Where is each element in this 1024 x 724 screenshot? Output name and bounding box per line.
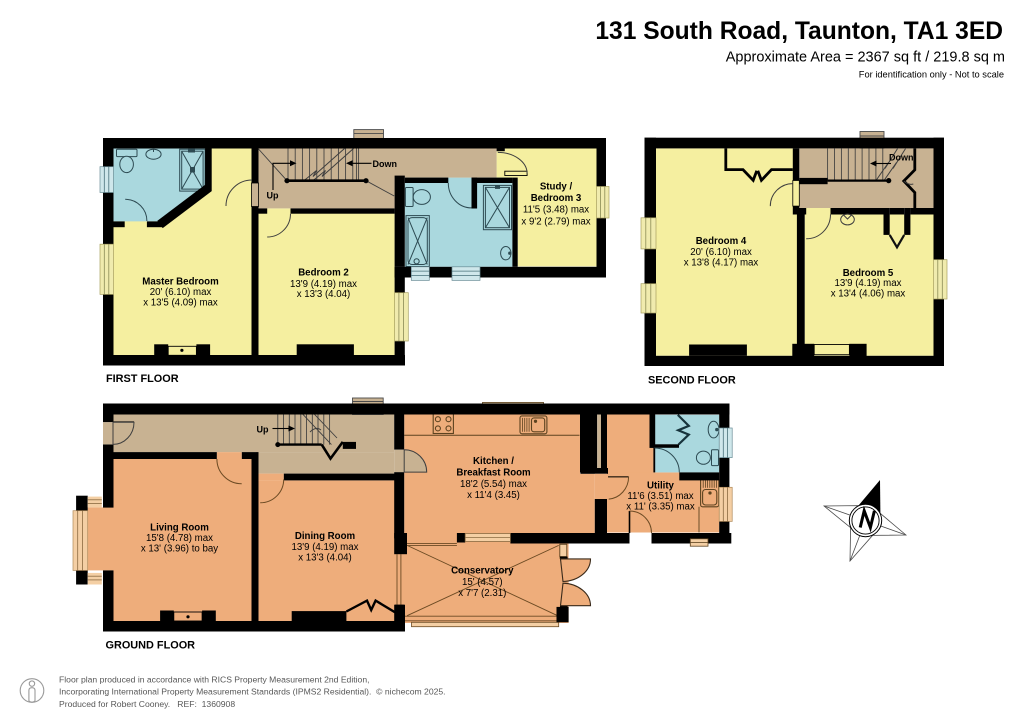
svg-text:Kitchen /: Kitchen / [473, 456, 514, 467]
svg-text:Dining Room: Dining Room [295, 531, 356, 542]
svg-text:Breakfast Room: Breakfast Room [456, 468, 531, 479]
svg-text:131 South Road, Taunton, TA1 3: 131 South Road, Taunton, TA1 3ED [595, 18, 1003, 45]
svg-text:18'2 (5.54) max: 18'2 (5.54) max [460, 479, 527, 490]
svg-text:FIRST FLOOR: FIRST FLOOR [106, 373, 179, 385]
svg-text:Down: Down [373, 159, 398, 169]
svg-text:11'5 (3.48) max: 11'5 (3.48) max [523, 205, 589, 216]
svg-text:Bedroom 3: Bedroom 3 [531, 193, 582, 204]
svg-text:Up: Up [257, 425, 269, 435]
svg-text:15'8 (4.78) max: 15'8 (4.78) max [146, 533, 213, 544]
svg-text:11'6 (3.51) max: 11'6 (3.51) max [627, 491, 693, 502]
svg-text:Up: Up [267, 191, 279, 201]
svg-text:Master Bedroom: Master Bedroom [142, 277, 219, 288]
svg-text:x 13'3 (4.04): x 13'3 (4.04) [297, 289, 351, 300]
svg-text:20' (6.10) max: 20' (6.10) max [150, 287, 212, 298]
svg-text:x 11'4 (3.45): x 11'4 (3.45) [467, 490, 520, 501]
svg-text:Bedroom 2: Bedroom 2 [298, 268, 349, 279]
svg-text:Living Room: Living Room [150, 522, 209, 533]
svg-text:20' (6.10) max: 20' (6.10) max [690, 247, 752, 258]
svg-text:Conservatory: Conservatory [451, 566, 514, 577]
svg-text:x 13'5 (4.09) max: x 13'5 (4.09) max [143, 298, 218, 309]
svg-text:SECOND FLOOR: SECOND FLOOR [648, 375, 736, 387]
svg-text:Approximate Area = 2367 sq ft: Approximate Area = 2367 sq ft / 219.8 sq… [726, 50, 1005, 66]
svg-text:x 11' (3.35) max: x 11' (3.35) max [626, 501, 695, 512]
svg-text:x 13'4 (4.06) max: x 13'4 (4.06) max [831, 289, 906, 300]
svg-text:15' (4.57): 15' (4.57) [462, 577, 503, 588]
svg-text:Study /: Study / [540, 182, 573, 193]
svg-text:GROUND FLOOR: GROUND FLOOR [106, 640, 196, 652]
svg-text:Produced for Robert Cooney.: Produced for Robert Cooney. REF: 1360908 [59, 699, 235, 709]
svg-text:x 13'3 (4.04): x 13'3 (4.04) [298, 552, 352, 563]
svg-text:For identification only - Not: For identification only - Not to scale [859, 70, 1004, 80]
svg-text:Floor plan produced in accorda: Floor plan produced in accordance with R… [59, 675, 370, 685]
svg-text:Utility: Utility [647, 481, 675, 492]
svg-text:Down: Down [889, 153, 914, 163]
svg-text:x 13' (3.96) to bay: x 13' (3.96) to bay [141, 543, 218, 554]
svg-text:Incorporating International Pr: Incorporating International Property Mea… [59, 687, 446, 697]
svg-text:x 13'8 (4.17) max: x 13'8 (4.17) max [684, 257, 759, 268]
svg-text:13'9 (4.19) max: 13'9 (4.19) max [291, 542, 358, 553]
svg-text:Bedroom 4: Bedroom 4 [696, 236, 747, 247]
svg-text:x 9'2 (2.79) max: x 9'2 (2.79) max [521, 216, 590, 227]
svg-text:x 7'7 (2.31): x 7'7 (2.31) [458, 588, 506, 599]
